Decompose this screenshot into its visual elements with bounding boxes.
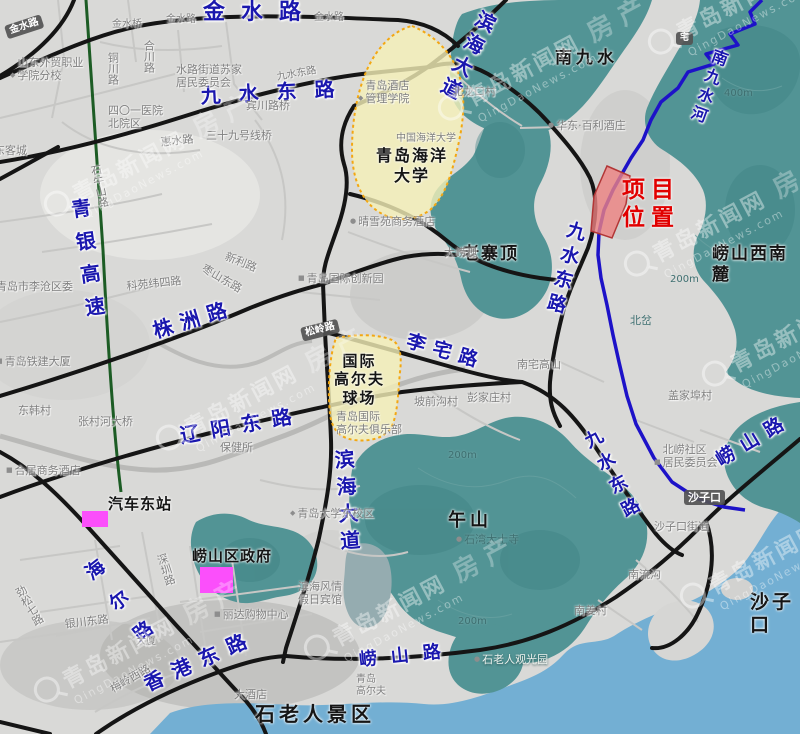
map-canvas: 金水路九水东路滨海大道青银高速株洲路辽阳东路李宅路九水东路滨海大道海尔路九水东路… [0, 0, 800, 734]
peninsula-islet [721, 578, 753, 600]
bus-station-marker [82, 511, 108, 527]
map-graphics [0, 0, 800, 734]
golf-course-area [329, 335, 401, 440]
government-marker [200, 567, 233, 593]
